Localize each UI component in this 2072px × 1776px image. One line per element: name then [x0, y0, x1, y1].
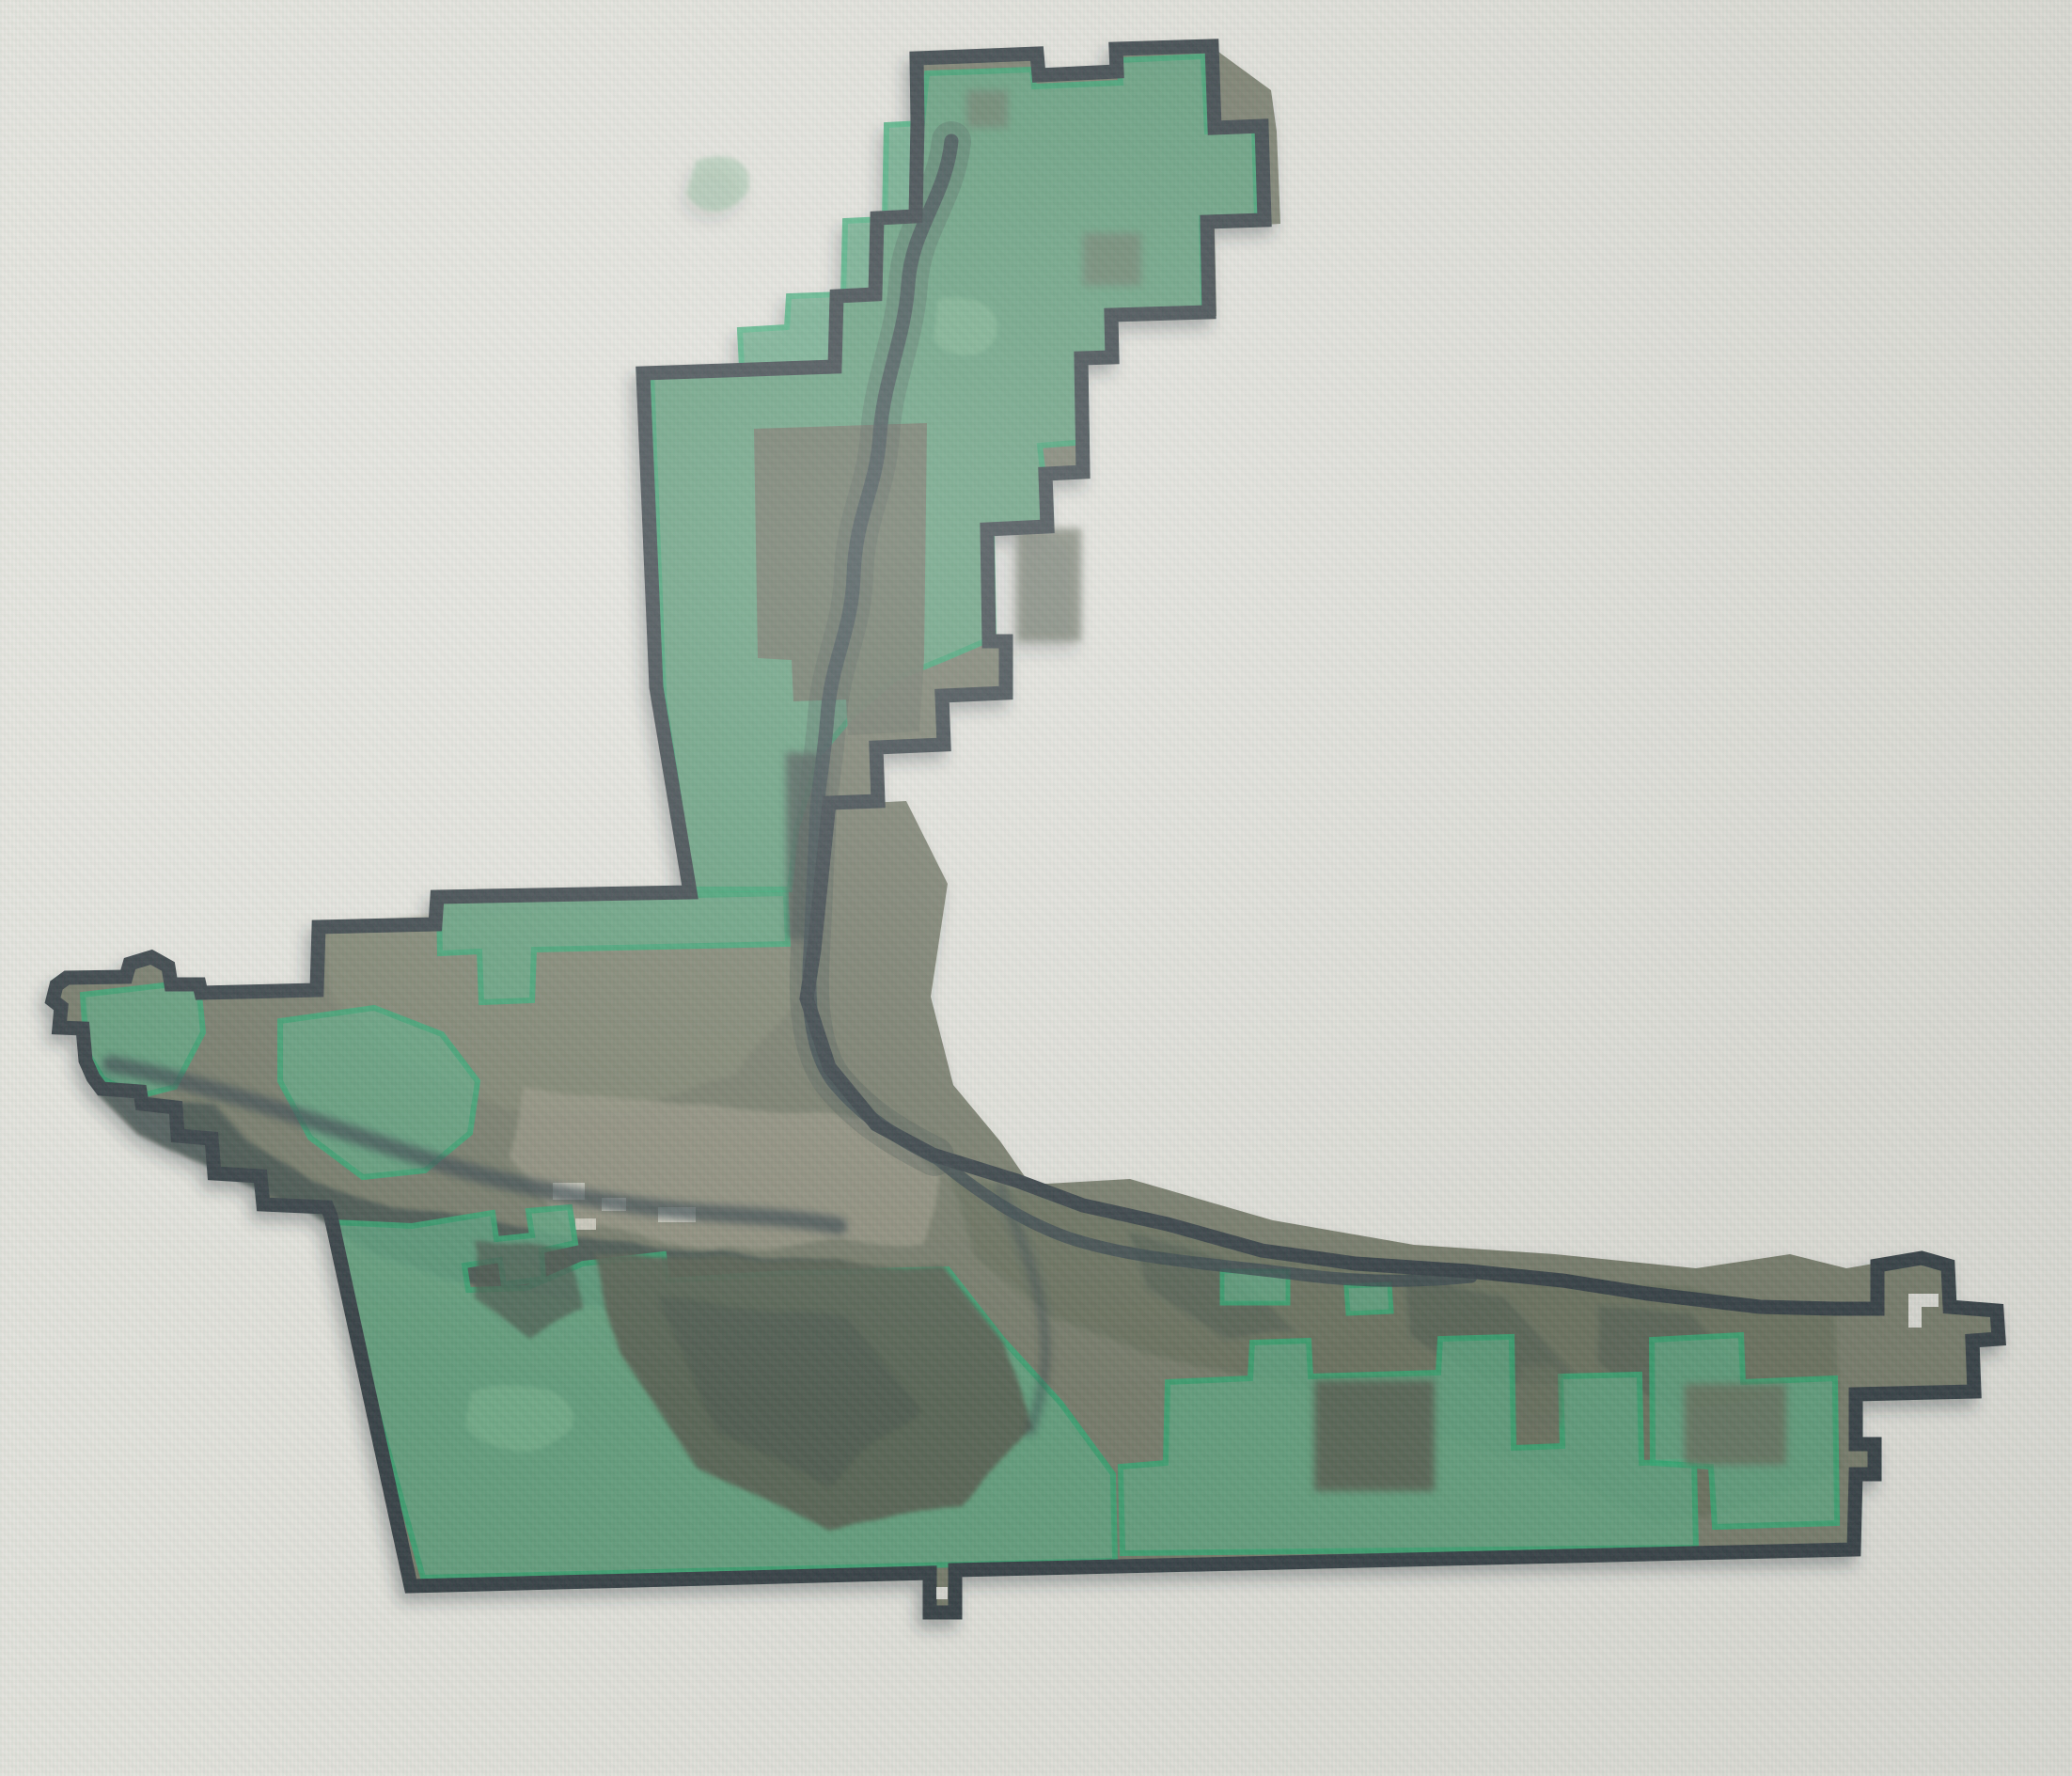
map-stage: City limits boundary map over aerial ima…	[0, 0, 2072, 1776]
bottom-tab-light-dot	[936, 1587, 948, 1599]
green-zone-sliver-1	[1346, 1284, 1391, 1313]
map-shadow-wrap	[49, 46, 2004, 1616]
carve-tip-dark-2	[1083, 233, 1141, 286]
map-layers	[49, 46, 2004, 1616]
carve-right-parcel	[1685, 1384, 1786, 1465]
monitor-screen: City limits boundary map over aerial ima…	[0, 0, 2072, 1776]
urban-building-4	[575, 1218, 596, 1230]
carve-checker-2	[1519, 1365, 1561, 1423]
city-limits-map[interactable]: City limits boundary map over aerial ima…	[0, 0, 2072, 1776]
green-highlight-3	[686, 157, 754, 212]
carve-checker-1	[1314, 1380, 1435, 1491]
carve-arm-east-olive	[1017, 528, 1081, 641]
carve-tip-dark-1	[966, 90, 1008, 128]
